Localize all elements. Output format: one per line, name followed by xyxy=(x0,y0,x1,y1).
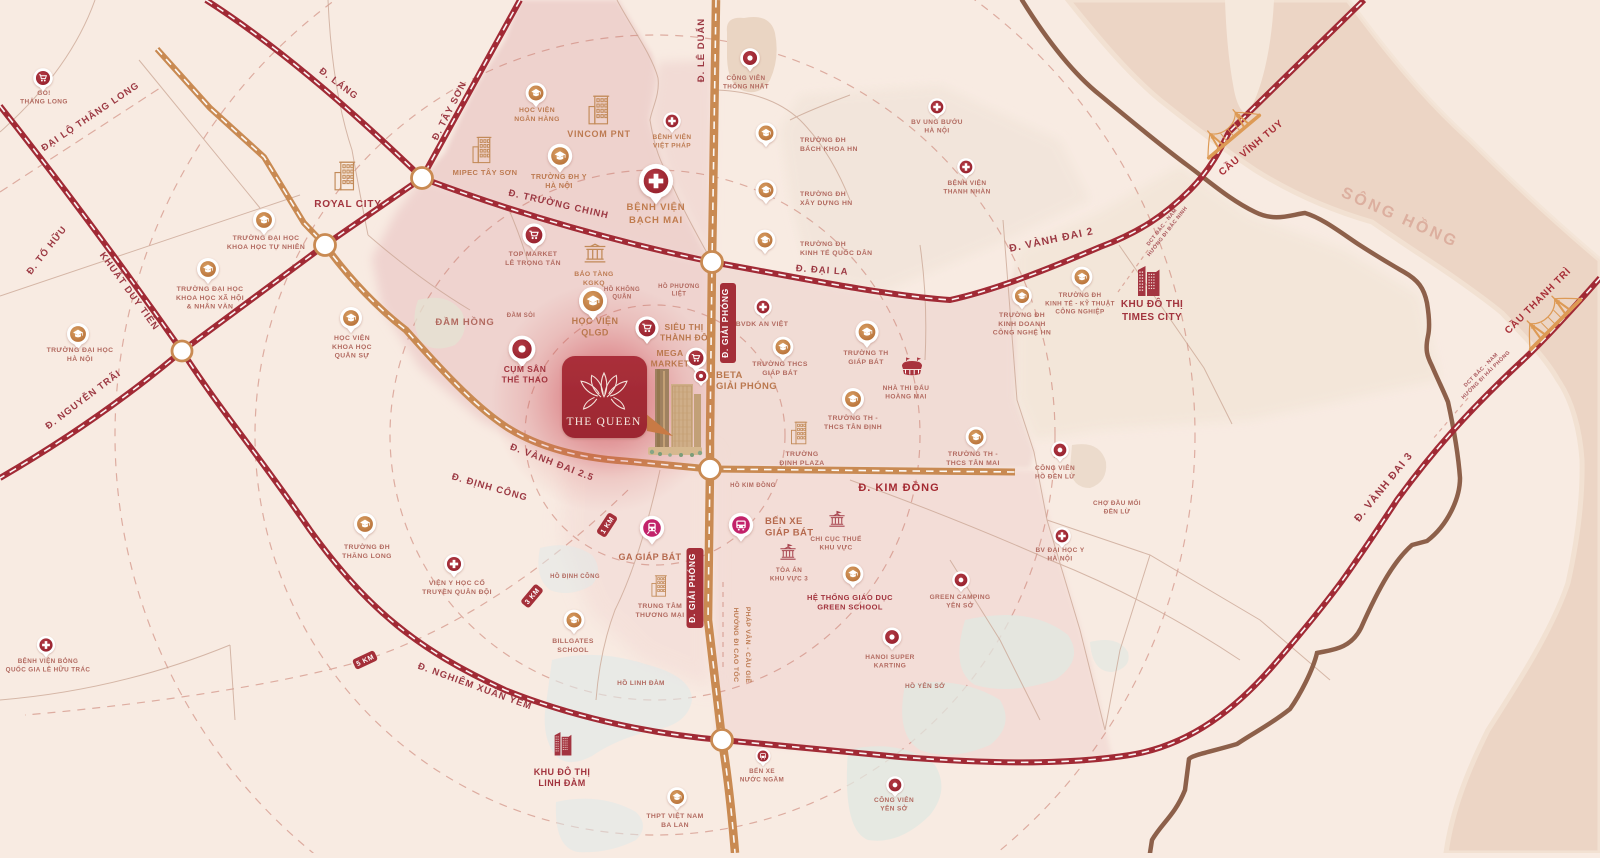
svg-text:GREEN CAMPING: GREEN CAMPING xyxy=(930,594,991,601)
svg-text:VIỆN Y HỌC CỔ: VIỆN Y HỌC CỔ xyxy=(429,578,485,587)
svg-text:TRƯỜNG ĐẠI HỌC: TRƯỜNG ĐẠI HỌC xyxy=(233,233,300,242)
svg-text:THĂNG LONG: THĂNG LONG xyxy=(342,551,392,560)
svg-text:LIỆT: LIỆT xyxy=(672,290,687,298)
svg-text:THCS TÂN ĐỊNH: THCS TÂN ĐỊNH xyxy=(824,422,882,431)
svg-text:HỒ ĐỊNH CÔNG: HỒ ĐỊNH CÔNG xyxy=(550,572,600,580)
svg-text:KINH DOANH: KINH DOANH xyxy=(998,321,1045,328)
svg-text:GIÁP BÁT: GIÁP BÁT xyxy=(762,368,798,377)
svg-text:HỒ KHÔNG: HỒ KHÔNG xyxy=(604,285,640,293)
svg-text:GO!: GO! xyxy=(37,90,50,97)
svg-text:HỌC VIỆN: HỌC VIỆN xyxy=(519,105,555,114)
svg-text:XÂY DỰNG HN: XÂY DỰNG HN xyxy=(800,198,853,207)
svg-text:TRƯỜNG ĐH: TRƯỜNG ĐH xyxy=(344,542,390,551)
svg-text:Đ. LÊ DUẨN: Đ. LÊ DUẨN xyxy=(695,18,707,82)
svg-text:TRƯỜNG ĐẠI HỌC: TRƯỜNG ĐẠI HỌC xyxy=(177,284,244,293)
svg-text:THỂ THAO: THỂ THAO xyxy=(502,374,549,385)
svg-text:KHU VỰC: KHU VỰC xyxy=(819,545,852,552)
svg-text:TRƯỜNG: TRƯỜNG xyxy=(785,449,818,458)
svg-text:TRƯỜNG ĐH: TRƯỜNG ĐH xyxy=(800,135,846,144)
svg-text:HỒ PHƯƠNG: HỒ PHƯƠNG xyxy=(658,283,700,290)
svg-text:MEGA: MEGA xyxy=(656,348,683,358)
svg-text:HÀ NỘI: HÀ NỘI xyxy=(924,126,949,135)
svg-text:BẠCH MAI: BẠCH MAI xyxy=(629,215,683,226)
svg-text:MARKET: MARKET xyxy=(651,359,690,369)
svg-text:HÀ NỘI: HÀ NỘI xyxy=(1047,554,1072,563)
svg-text:BVDK AN VIỆT: BVDK AN VIỆT xyxy=(736,319,789,328)
svg-text:HỌC VIỆN: HỌC VIỆN xyxy=(334,333,370,342)
svg-text:GIÁP BÁT: GIÁP BÁT xyxy=(848,357,884,366)
svg-text:THĂNG LONG: THĂNG LONG xyxy=(20,97,68,106)
svg-text:TRƯỜNG ĐH: TRƯỜNG ĐH xyxy=(800,239,846,248)
svg-text:TRƯỜNG ĐH: TRƯỜNG ĐH xyxy=(800,189,846,198)
svg-text:BÁCH KHOA HN: BÁCH KHOA HN xyxy=(800,144,858,153)
svg-text:KARTING: KARTING xyxy=(874,663,906,670)
svg-text:Đ. KIM ĐỒNG: Đ. KIM ĐỒNG xyxy=(858,481,939,494)
svg-text:TRƯỜNG ĐH Y: TRƯỜNG ĐH Y xyxy=(531,172,587,181)
svg-text:BV ĐẠI HỌC Y: BV ĐẠI HỌC Y xyxy=(1035,547,1084,554)
svg-text:Đ. GIẢI PHÓNG: Đ. GIẢI PHÓNG xyxy=(719,288,730,358)
svg-text:HANOI SUPER: HANOI SUPER xyxy=(865,654,915,661)
svg-text:THCS TÂN MAI: THCS TÂN MAI xyxy=(946,458,1000,467)
svg-text:BA LAN: BA LAN xyxy=(661,822,689,829)
svg-text:THE QUEEN: THE QUEEN xyxy=(567,416,642,428)
svg-text:KHU ĐÔ THỊ: KHU ĐÔ THỊ xyxy=(1121,297,1183,310)
svg-text:GA GIÁP BÁT: GA GIÁP BÁT xyxy=(619,552,682,562)
svg-text:VIỆT PHÁP: VIỆT PHÁP xyxy=(653,141,691,150)
svg-text:VINCOM PNT: VINCOM PNT xyxy=(567,129,631,139)
svg-text:TOP MARKET: TOP MARKET xyxy=(509,251,558,258)
svg-text:KHOA HỌC TỰ NHIÊN: KHOA HỌC TỰ NHIÊN xyxy=(227,242,305,251)
svg-text:MIPEC TÂY SƠN: MIPEC TÂY SƠN xyxy=(453,168,518,177)
svg-text:KGKQ: KGKQ xyxy=(583,280,605,287)
svg-text:THANH NHÀN: THANH NHÀN xyxy=(943,187,990,196)
svg-text:YÊN SỞ: YÊN SỞ xyxy=(880,804,908,813)
svg-text:KHU ĐÔ THỊ: KHU ĐÔ THỊ xyxy=(534,766,591,777)
svg-text:CÔNG VIÊN: CÔNG VIÊN xyxy=(727,73,766,82)
svg-text:TÒA ÁN: TÒA ÁN xyxy=(776,565,802,574)
svg-text:TRƯỜNG ĐH: TRƯỜNG ĐH xyxy=(1059,290,1102,299)
svg-text:TRUNG TÂM: TRUNG TÂM xyxy=(638,601,682,610)
svg-text:TRƯỜNG ĐẠI HỌC: TRƯỜNG ĐẠI HỌC xyxy=(47,345,114,354)
svg-text:TRƯỜNG TH -: TRƯỜNG TH - xyxy=(948,449,998,458)
svg-text:TRƯỜNG TH: TRƯỜNG TH xyxy=(843,348,888,357)
svg-text:THPT VIỆT NAM: THPT VIỆT NAM xyxy=(646,811,703,820)
svg-text:GIẢI PHÓNG: GIẢI PHÓNG xyxy=(716,380,777,392)
svg-text:BỆNH VIỆN BỎNG: BỆNH VIỆN BỎNG xyxy=(18,656,79,665)
svg-text:ROYAL CITY: ROYAL CITY xyxy=(314,199,381,210)
svg-text:NGÂN HÀNG: NGÂN HÀNG xyxy=(514,114,560,123)
svg-text:BILLGATES: BILLGATES xyxy=(552,638,594,645)
svg-text:TIMES CITY: TIMES CITY xyxy=(1122,312,1182,323)
svg-text:KHOA HỌC XÃ HỘI: KHOA HỌC XÃ HỘI xyxy=(176,293,244,302)
svg-text:& NHÂN VĂN: & NHÂN VĂN xyxy=(187,302,234,311)
svg-text:BỆNH VIỆN: BỆNH VIỆN xyxy=(653,132,692,141)
svg-text:ĐẦM SÒI: ĐẦM SÒI xyxy=(507,311,535,319)
svg-text:CÔNG VIÊN: CÔNG VIÊN xyxy=(1035,463,1075,472)
svg-text:HỆ THỐNG GIÁO DỤC: HỆ THỐNG GIÁO DỤC xyxy=(807,592,893,602)
svg-text:BỆNH VIỆN: BỆNH VIỆN xyxy=(948,178,987,187)
svg-text:BẾN XE: BẾN XE xyxy=(765,516,803,527)
svg-text:CÔNG VIÊN: CÔNG VIÊN xyxy=(874,795,914,804)
svg-text:BETA: BETA xyxy=(716,370,743,381)
svg-text:CÔNG NGHIỆP: CÔNG NGHIỆP xyxy=(1055,307,1104,316)
svg-text:YÊN SỞ: YÊN SỞ xyxy=(946,601,974,610)
svg-text:HOÀNG MAI: HOÀNG MAI xyxy=(885,392,927,401)
svg-text:BẢO TÀNG: BẢO TÀNG xyxy=(574,269,613,278)
svg-text:ĐẦM HỒNG: ĐẦM HỒNG xyxy=(435,316,494,328)
svg-text:GIÁP BÁT: GIÁP BÁT xyxy=(765,528,813,539)
svg-text:LINH ĐÀM: LINH ĐÀM xyxy=(538,778,585,788)
svg-text:BỆNH VIỆN: BỆNH VIỆN xyxy=(627,201,686,213)
svg-text:TRƯỜNG TH -: TRƯỜNG TH - xyxy=(828,413,878,422)
svg-text:QLGD: QLGD xyxy=(581,328,609,338)
svg-text:THƯƠNG MẠI: THƯƠNG MẠI xyxy=(635,612,684,619)
svg-text:BV UNG BƯỚU: BV UNG BƯỚU xyxy=(911,117,963,126)
svg-text:KHOA HỌC: KHOA HỌC xyxy=(332,344,372,351)
svg-text:THÀNH ĐÔ: THÀNH ĐÔ xyxy=(660,332,708,343)
svg-text:KHU VỰC 3: KHU VỰC 3 xyxy=(770,575,808,582)
svg-text:HỒ KIM ĐỒNG: HỒ KIM ĐỒNG xyxy=(730,482,776,489)
svg-text:HÀ NỘI: HÀ NỘI xyxy=(67,354,93,363)
svg-text:ĐỊNH PLAZA: ĐỊNH PLAZA xyxy=(779,460,824,467)
svg-text:QUÂN SỰ: QUÂN SỰ xyxy=(335,351,370,360)
svg-text:TRƯỜNG THCS: TRƯỜNG THCS xyxy=(752,359,808,368)
svg-text:Đ. GIẢI PHÓNG: Đ. GIẢI PHÓNG xyxy=(686,553,697,623)
svg-text:CỤM SÂN: CỤM SÂN xyxy=(504,363,546,374)
svg-text:SIÊU THỊ: SIÊU THỊ xyxy=(664,321,703,332)
svg-text:HÀ NỘI: HÀ NỘI xyxy=(545,181,573,190)
svg-text:TRƯỜNG ĐH: TRƯỜNG ĐH xyxy=(999,310,1045,319)
svg-text:GREEN SCHOOL: GREEN SCHOOL xyxy=(817,603,883,612)
svg-text:QUÂN: QUÂN xyxy=(612,294,631,301)
svg-text:SCHOOL: SCHOOL xyxy=(557,647,588,654)
svg-text:CÔNG NGHỆ HN: CÔNG NGHỆ HN xyxy=(993,328,1051,337)
svg-text:HỌC VIỆN: HỌC VIỆN xyxy=(572,315,619,326)
